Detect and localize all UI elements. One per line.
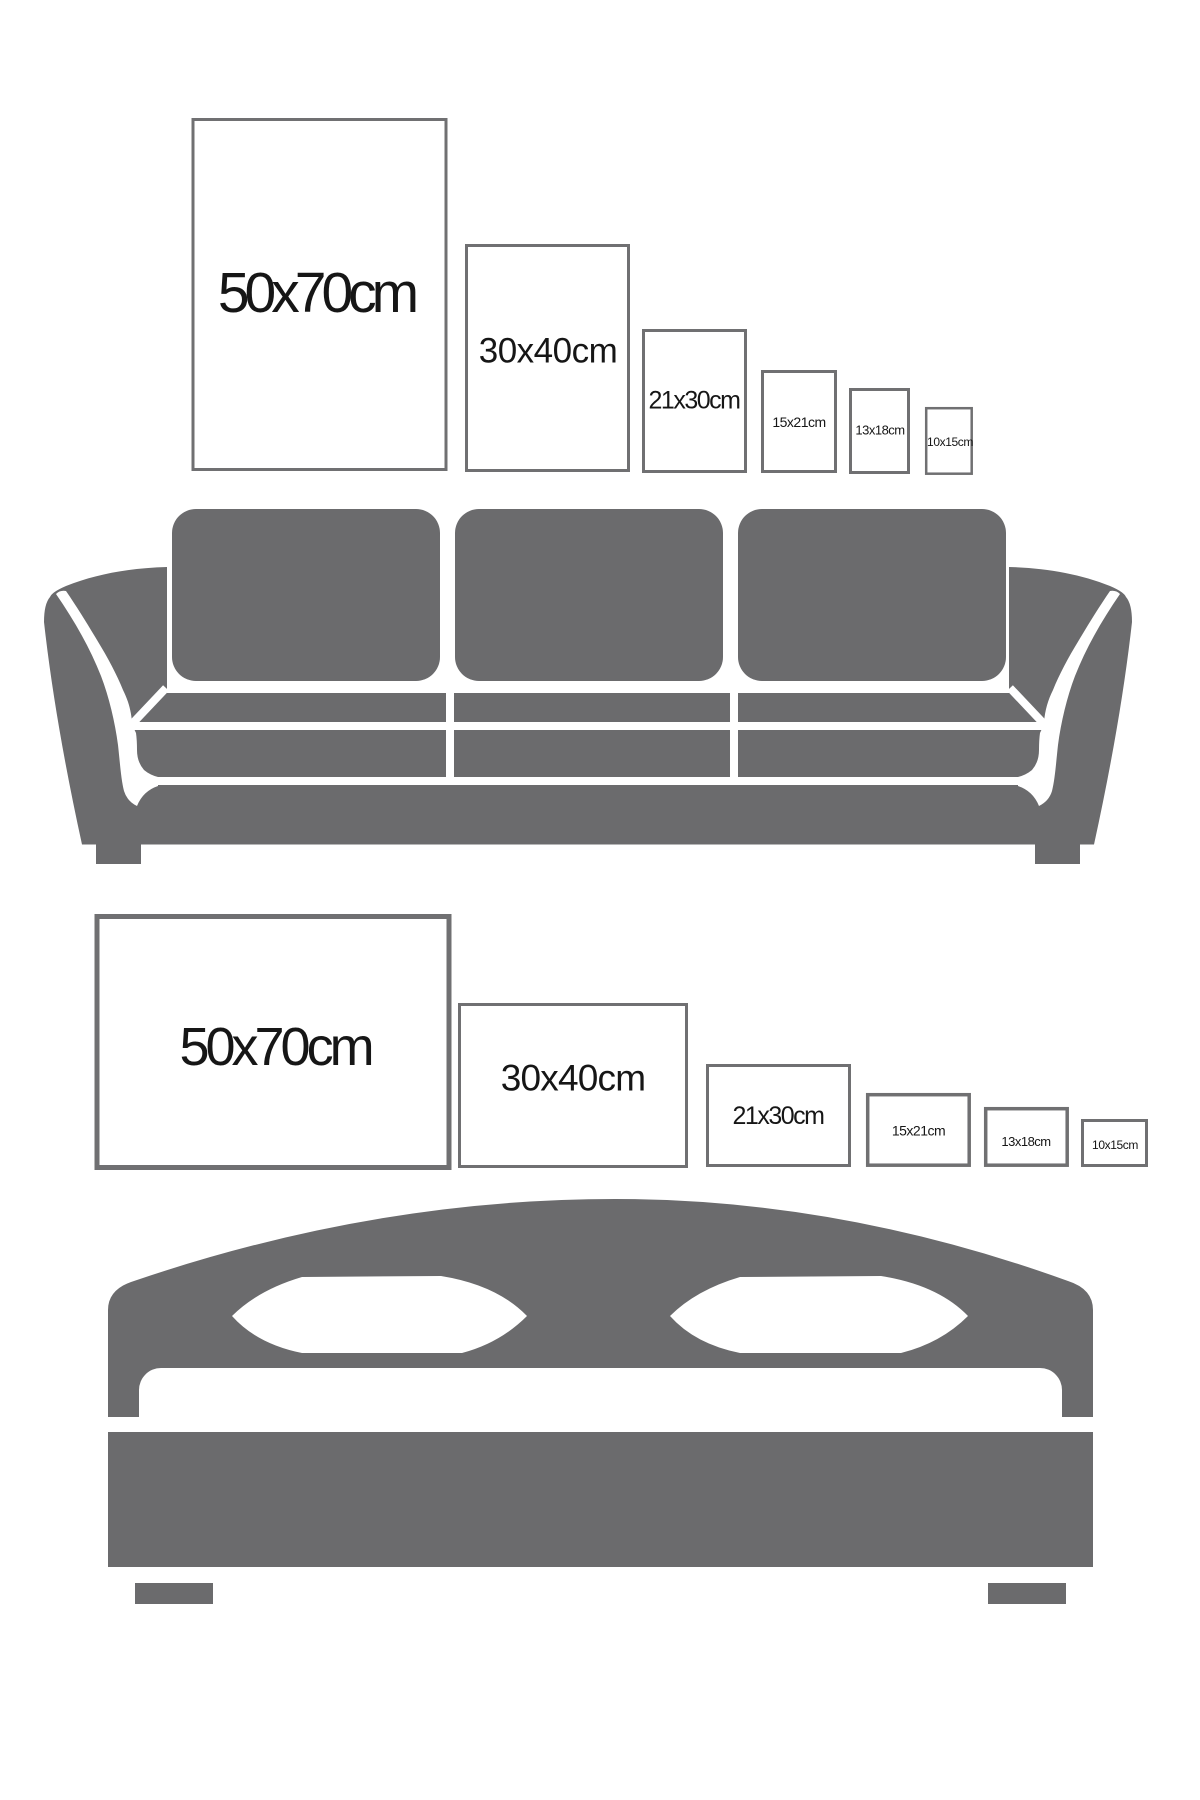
svg-text:13x18cm: 13x18cm: [1001, 1134, 1050, 1149]
svg-text:21x30cm: 21x30cm: [733, 1102, 825, 1130]
svg-text:30x40cm: 30x40cm: [501, 1058, 646, 1099]
svg-text:10x15cm: 10x15cm: [927, 435, 973, 449]
svg-text:30x40cm: 30x40cm: [479, 332, 618, 371]
svg-text:50x70cm: 50x70cm: [218, 261, 416, 325]
svg-text:10x15cm: 10x15cm: [1092, 1138, 1138, 1152]
svg-text:50x70cm: 50x70cm: [179, 1017, 371, 1077]
svg-text:15x21cm: 15x21cm: [892, 1123, 945, 1139]
svg-text:15x21cm: 15x21cm: [772, 414, 825, 430]
svg-text:13x18cm: 13x18cm: [855, 423, 904, 438]
svg-text:21x30cm: 21x30cm: [649, 387, 741, 415]
